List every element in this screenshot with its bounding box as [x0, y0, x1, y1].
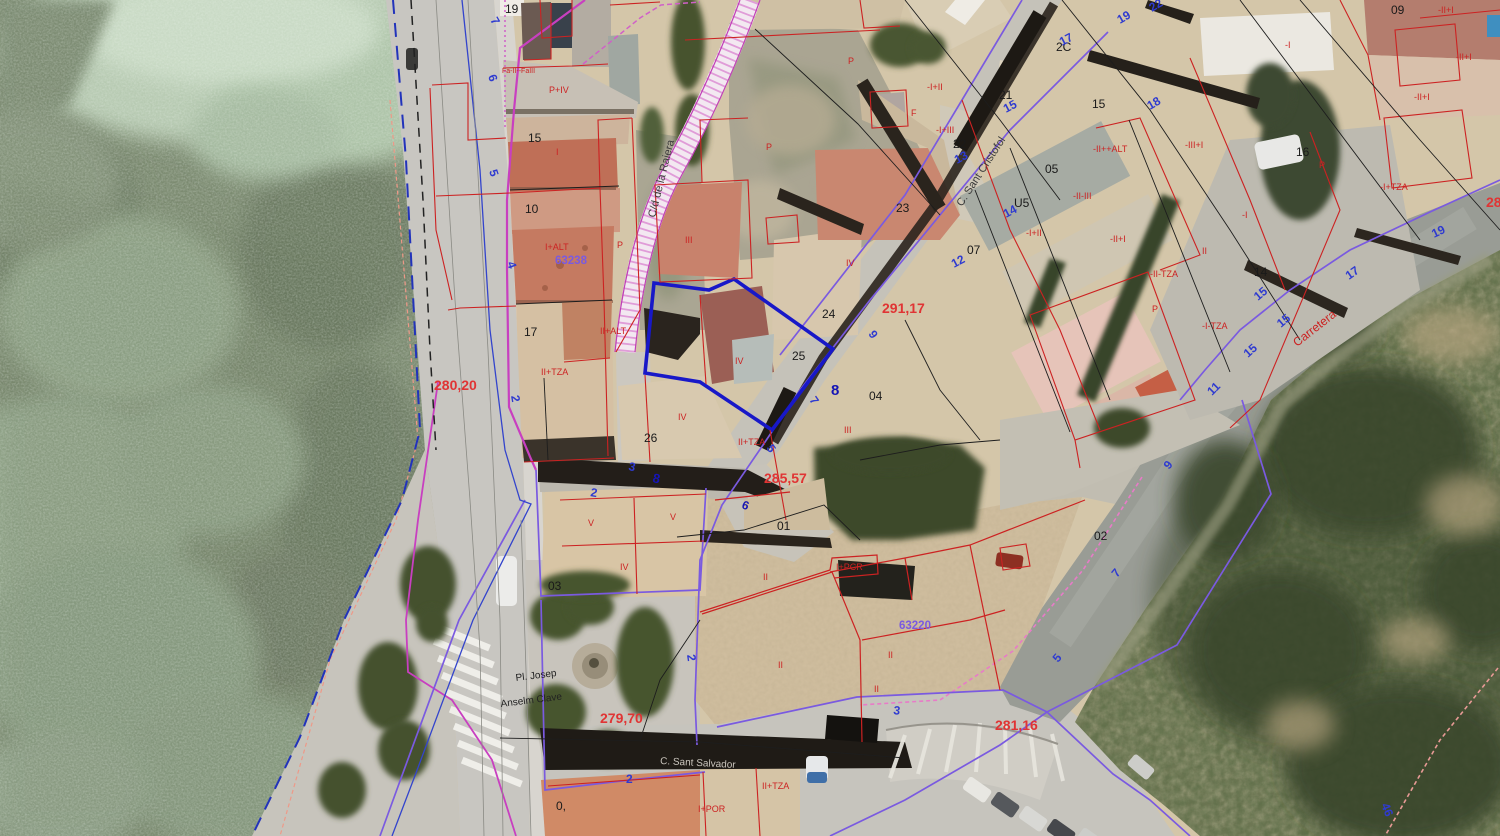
svg-text:-II++ALT: -II++ALT: [1093, 144, 1128, 154]
svg-text:-I: -I: [1285, 40, 1291, 50]
svg-text:-II+I: -II+I: [1110, 234, 1126, 244]
svg-text:17: 17: [524, 325, 538, 339]
svg-text:-I-TZA: -I-TZA: [1202, 321, 1228, 331]
svg-text:279,70: 279,70: [600, 710, 643, 726]
svg-text:03: 03: [548, 579, 562, 593]
svg-text:II+TZA: II+TZA: [738, 437, 765, 447]
svg-text:14: 14: [1254, 265, 1268, 279]
svg-text:II+ALT: II+ALT: [600, 326, 627, 336]
svg-text:I+ALT: I+ALT: [545, 242, 569, 252]
svg-text:26: 26: [644, 431, 658, 445]
svg-text:-II+I: -II+I: [1438, 5, 1454, 15]
svg-text:P: P: [617, 240, 623, 250]
svg-text:01: 01: [777, 519, 791, 533]
svg-text:F: F: [911, 108, 917, 118]
svg-text:P: P: [766, 142, 772, 152]
svg-text:V: V: [670, 512, 676, 522]
svg-text:281,16: 281,16: [995, 717, 1038, 733]
svg-text:U5: U5: [1014, 196, 1030, 210]
svg-text:IV: IV: [735, 356, 744, 366]
svg-text:-II-III: -II-III: [1073, 191, 1092, 201]
svg-text:15: 15: [1092, 97, 1106, 111]
svg-text:III: III: [685, 235, 693, 245]
svg-text:I+POR: I+POR: [698, 804, 726, 814]
svg-text:16: 16: [1296, 145, 1310, 159]
svg-text:IV: IV: [620, 562, 629, 572]
svg-text:II+TZA: II+TZA: [541, 367, 568, 377]
svg-text:IV: IV: [678, 412, 687, 422]
svg-text:V: V: [588, 518, 594, 528]
svg-text:III: III: [844, 425, 852, 435]
svg-text:P: P: [1319, 160, 1325, 170]
svg-text:I: I: [556, 147, 559, 157]
svg-text:-I+TZA: -I+TZA: [1380, 182, 1408, 192]
svg-text:2: 2: [626, 772, 633, 786]
svg-text:-I+II: -I+II: [927, 82, 943, 92]
svg-text:0,: 0,: [556, 799, 566, 813]
svg-text:II: II: [763, 572, 768, 582]
svg-text:19: 19: [505, 2, 519, 16]
svg-text:28: 28: [1486, 194, 1500, 210]
svg-text:Fa-II--FaIII: Fa-II--FaIII: [502, 68, 535, 75]
svg-text:285,57: 285,57: [764, 470, 807, 486]
svg-text:07: 07: [967, 243, 981, 257]
svg-text:I+PCR: I+PCR: [836, 562, 863, 572]
svg-text:-II+I: -II+I: [1414, 92, 1430, 102]
svg-text:63220: 63220: [899, 620, 931, 632]
svg-text:280,20: 280,20: [434, 377, 477, 393]
svg-text:24: 24: [822, 307, 836, 321]
svg-text:05: 05: [1045, 162, 1059, 176]
svg-text:02: 02: [1094, 529, 1108, 543]
svg-text:09: 09: [1391, 3, 1405, 17]
svg-text:P: P: [848, 56, 854, 66]
svg-text:22: 22: [953, 137, 967, 151]
svg-text:-III+I: -III+I: [1185, 140, 1203, 150]
svg-text:II: II: [874, 684, 879, 694]
svg-text:P: P: [1152, 304, 1158, 314]
svg-text:04: 04: [869, 389, 883, 403]
svg-text:10: 10: [525, 202, 539, 216]
svg-text:-I+II: -I+II: [1026, 228, 1042, 238]
svg-text:-II+I: -II+I: [1456, 52, 1472, 62]
svg-text:63238: 63238: [555, 255, 588, 267]
svg-text:291,17: 291,17: [882, 300, 925, 316]
svg-text:-I+III: -I+III: [936, 125, 954, 135]
svg-text:-I: -I: [1242, 210, 1248, 220]
svg-text:II: II: [1202, 246, 1207, 256]
svg-text:8: 8: [831, 382, 839, 399]
svg-text:15: 15: [528, 131, 542, 145]
svg-text:23: 23: [896, 201, 910, 215]
svg-text:25: 25: [792, 349, 806, 363]
svg-text:II+TZA: II+TZA: [762, 781, 789, 791]
svg-text:-II-TZA: -II-TZA: [1150, 269, 1178, 279]
svg-text:II: II: [778, 660, 783, 670]
svg-text:IV: IV: [846, 258, 855, 268]
svg-text:II: II: [888, 650, 893, 660]
svg-text:P+IV: P+IV: [549, 85, 569, 95]
